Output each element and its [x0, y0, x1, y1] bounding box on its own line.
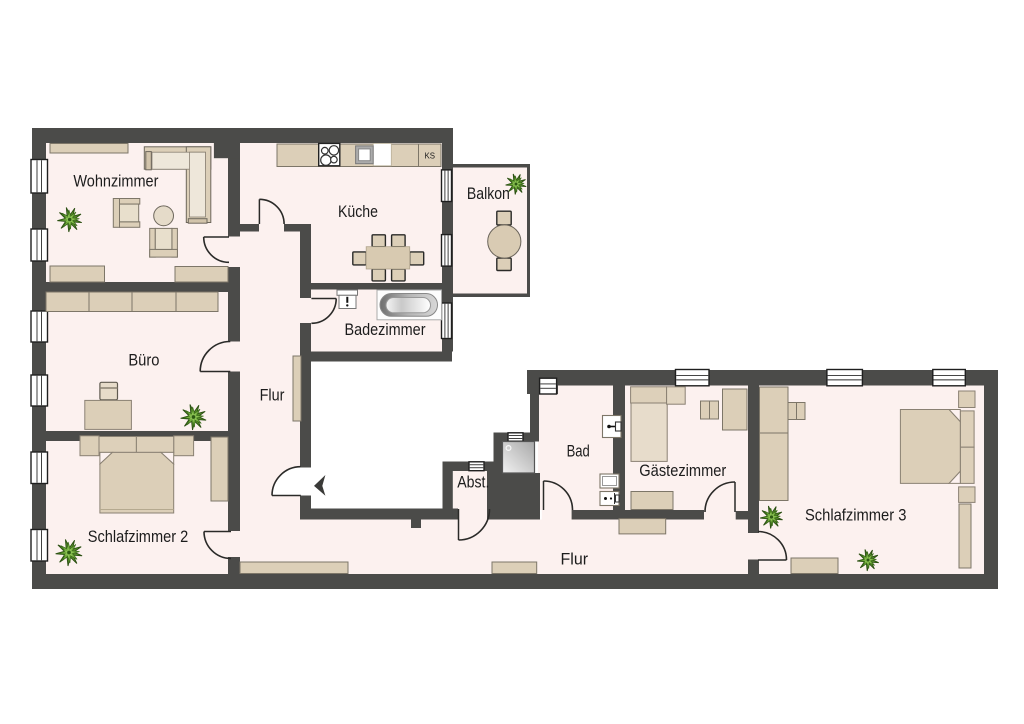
svg-text:KS: KS — [425, 152, 436, 161]
svg-text:Schlafzimmer 3: Schlafzimmer 3 — [805, 507, 907, 525]
svg-text:Bad: Bad — [567, 443, 590, 461]
svg-text:Büro: Büro — [128, 352, 159, 370]
svg-text:Wohnzimmer: Wohnzimmer — [73, 173, 159, 191]
svg-text:Badezimmer: Badezimmer — [344, 321, 426, 339]
svg-text:Flur: Flur — [561, 551, 589, 569]
svg-text:Abst.: Abst. — [457, 473, 489, 491]
svg-text:Gästezimmer: Gästezimmer — [639, 462, 727, 480]
svg-text:Flur: Flur — [260, 387, 285, 405]
svg-text:Schlafzimmer 2: Schlafzimmer 2 — [88, 528, 189, 546]
svg-text:Küche: Küche — [338, 203, 378, 221]
svg-text:Balkon: Balkon — [467, 185, 510, 203]
